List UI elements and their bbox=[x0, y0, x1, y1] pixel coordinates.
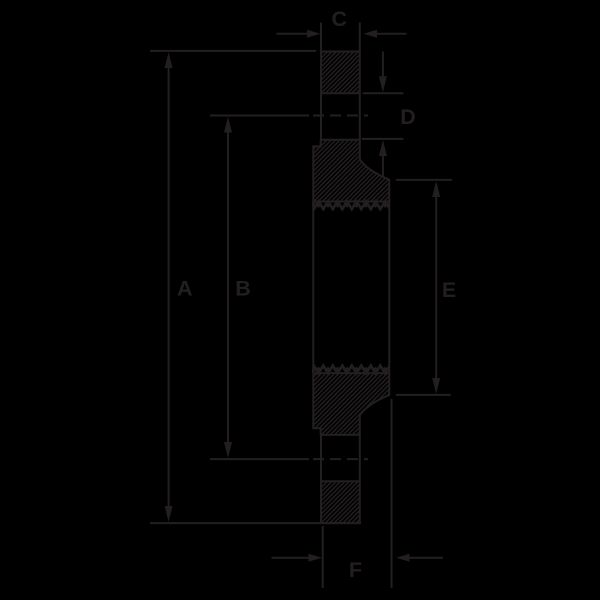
svg-text:F: F bbox=[349, 558, 362, 582]
svg-text:E: E bbox=[442, 278, 456, 302]
svg-text:A: A bbox=[177, 276, 193, 300]
svg-text:B: B bbox=[235, 276, 251, 300]
svg-text:D: D bbox=[400, 105, 416, 129]
svg-text:C: C bbox=[332, 7, 348, 31]
